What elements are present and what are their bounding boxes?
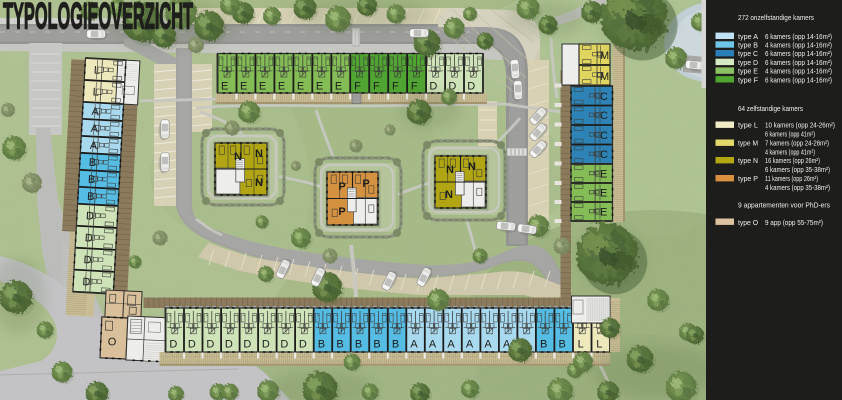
svg-text:10 kamers (opp 24-26m²): 10 kamers (opp 24-26m²) — [765, 121, 835, 130]
svg-text:6 kamers (opp 14-16m²): 6 kamers (opp 14-16m²) — [765, 32, 832, 41]
svg-text:A: A — [90, 123, 99, 135]
svg-text:4 kamers (opp 14-16m²): 4 kamers (opp 14-16m²) — [765, 41, 832, 50]
svg-text:6 kamers (opp 14-16m²): 6 kamers (opp 14-16m²) — [765, 58, 832, 67]
svg-text:6 kamers (opp 41m²): 6 kamers (opp 41m²) — [765, 130, 815, 139]
svg-text:E: E — [240, 81, 247, 93]
svg-text:M: M — [600, 50, 609, 62]
svg-text:B: B — [355, 339, 362, 351]
svg-text:type O: type O — [738, 218, 758, 227]
svg-text:P: P — [338, 206, 345, 218]
svg-text:E: E — [221, 81, 228, 93]
svg-text:F: F — [354, 81, 361, 93]
svg-text:B: B — [336, 339, 343, 351]
svg-text:A: A — [429, 339, 437, 351]
svg-text:P: P — [338, 181, 345, 193]
svg-text:D: D — [280, 339, 288, 351]
svg-text:N: N — [255, 148, 263, 160]
svg-text:D: D — [86, 210, 95, 222]
svg-text:type A: type A — [738, 32, 758, 41]
svg-text:9 app (opp 55-75m²): 9 app (opp 55-75m²) — [765, 218, 823, 227]
svg-text:L: L — [92, 86, 99, 98]
svg-text:A: A — [91, 106, 100, 118]
svg-text:N: N — [255, 177, 263, 189]
svg-text:D: D — [467, 81, 475, 93]
svg-text:C: C — [600, 91, 608, 103]
svg-text:E: E — [600, 188, 607, 200]
svg-text:E: E — [335, 81, 342, 93]
svg-text:O: O — [107, 336, 117, 348]
svg-text:64 zelfstandige kamers: 64 zelfstandige kamers — [738, 104, 803, 113]
svg-text:type P: type P — [738, 174, 758, 183]
svg-text:B: B — [540, 339, 547, 351]
svg-text:E: E — [297, 81, 304, 93]
svg-text:D: D — [206, 339, 214, 351]
svg-text:D: D — [188, 339, 196, 351]
svg-text:B: B — [392, 339, 399, 351]
svg-text:A: A — [466, 339, 474, 351]
svg-text:B: B — [88, 174, 96, 186]
svg-text:D: D — [299, 339, 307, 351]
svg-text:E: E — [600, 169, 607, 181]
svg-text:F: F — [392, 81, 399, 93]
svg-text:type D: type D — [738, 58, 758, 67]
svg-text:N: N — [445, 189, 453, 201]
svg-text:type C: type C — [738, 49, 759, 58]
svg-text:A: A — [89, 140, 98, 152]
svg-text:A: A — [484, 339, 492, 351]
svg-text:B: B — [559, 339, 566, 351]
svg-text:N: N — [446, 164, 454, 176]
svg-text:4 kamers (opp 35-38m²): 4 kamers (opp 35-38m²) — [765, 183, 830, 192]
svg-text:6 kamers (opp 14-16m²): 6 kamers (opp 14-16m²) — [765, 49, 832, 58]
svg-text:C: C — [600, 130, 608, 142]
svg-text:F: F — [411, 81, 418, 93]
svg-text:L: L — [94, 64, 101, 76]
svg-text:C: C — [600, 110, 608, 122]
svg-text:E: E — [316, 81, 323, 93]
svg-text:D: D — [83, 254, 92, 266]
svg-text:P: P — [362, 178, 369, 190]
svg-text:B: B — [87, 191, 95, 203]
svg-text:16 kamers (opp 26m²): 16 kamers (opp 26m²) — [765, 156, 820, 165]
svg-text:TYPOLOGIEOVERZICHT: TYPOLOGIEOVERZICHT — [3, 0, 193, 38]
svg-text:type N: type N — [738, 156, 758, 165]
svg-text:6 kamers (opp 35-38m²): 6 kamers (opp 35-38m²) — [765, 165, 830, 174]
svg-text:A: A — [410, 339, 418, 351]
svg-text:4 kamers (opp 14-16m²): 4 kamers (opp 14-16m²) — [765, 67, 832, 76]
svg-text:L: L — [596, 339, 602, 351]
svg-text:D: D — [225, 339, 233, 351]
svg-text:A: A — [447, 339, 455, 351]
svg-text:F: F — [373, 81, 380, 93]
svg-text:D: D — [84, 232, 93, 244]
svg-text:type E: type E — [738, 67, 758, 76]
svg-text:B: B — [318, 339, 325, 351]
svg-text:B: B — [89, 157, 97, 169]
svg-text:E: E — [278, 81, 285, 93]
svg-text:type M: type M — [738, 139, 758, 148]
svg-text:E: E — [600, 207, 607, 219]
svg-text:L: L — [578, 339, 584, 351]
svg-text:B: B — [373, 339, 380, 351]
svg-text:D: D — [82, 276, 91, 288]
svg-text:D: D — [243, 339, 251, 351]
svg-text:C: C — [600, 149, 608, 161]
svg-text:E: E — [259, 81, 266, 93]
svg-text:9 appartementen voor PhD-ers: 9 appartementen voor PhD-ers — [738, 201, 830, 210]
svg-text:type L: type L — [738, 121, 758, 130]
svg-text:N: N — [468, 161, 476, 173]
svg-text:7 kamers (opp 24-26m²): 7 kamers (opp 24-26m²) — [765, 139, 829, 148]
svg-text:272 onzelfstandige kamers: 272 onzelfstandige kamers — [738, 13, 814, 22]
svg-text:type F: type F — [738, 75, 758, 84]
svg-text:D: D — [262, 339, 270, 351]
svg-text:11 kamers (opp 26m²): 11 kamers (opp 26m²) — [765, 174, 818, 183]
svg-text:6 kamers (opp 14-16m²): 6 kamers (opp 14-16m²) — [765, 75, 832, 84]
svg-text:N: N — [234, 151, 242, 163]
svg-text:D: D — [169, 339, 177, 351]
svg-text:M: M — [600, 71, 609, 83]
svg-text:type B: type B — [738, 41, 758, 50]
